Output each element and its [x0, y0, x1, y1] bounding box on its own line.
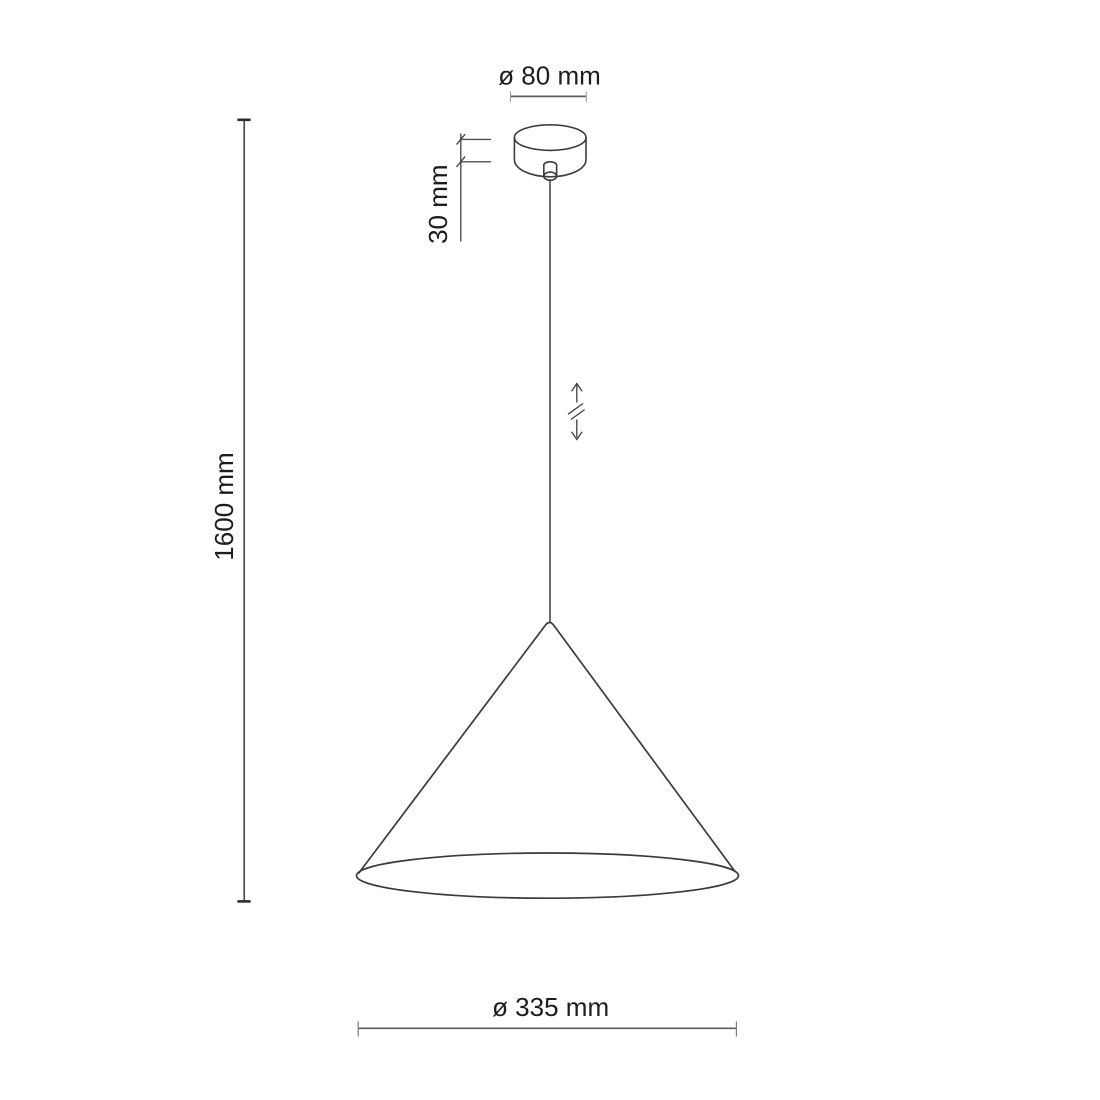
svg-text:ø 80 mm: ø 80 mm [498, 61, 601, 91]
svg-text:1600 mm: 1600 mm [209, 452, 239, 560]
svg-text:30 mm: 30 mm [423, 164, 453, 243]
svg-text:ø 335 mm: ø 335 mm [492, 992, 609, 1022]
